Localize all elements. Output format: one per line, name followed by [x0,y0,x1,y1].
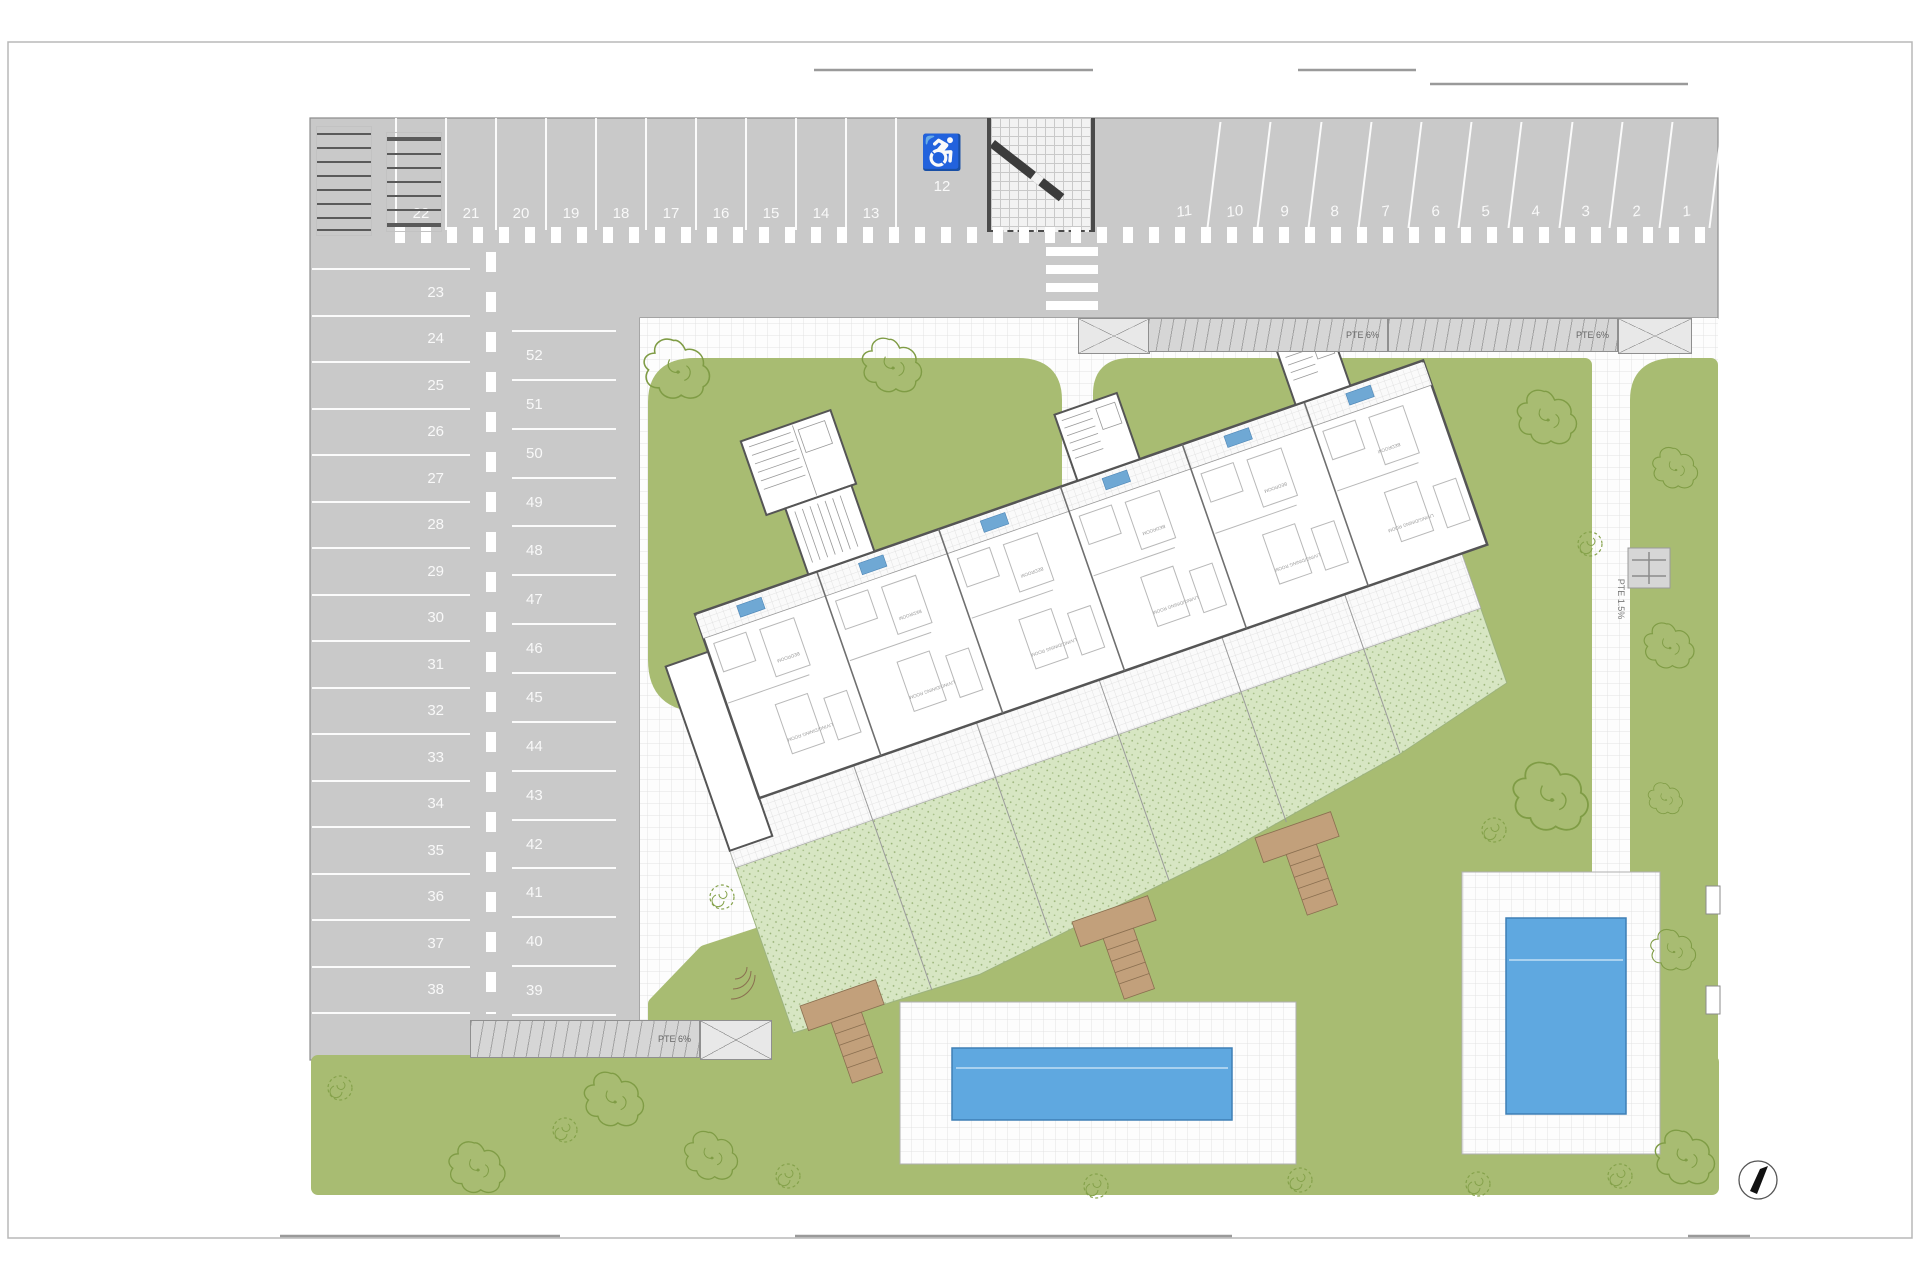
parking-space-number: 24 [427,330,444,347]
parking-space: 31 [312,642,470,689]
parking-space-number: 29 [427,563,444,580]
parking-space: 14 [797,118,847,230]
parking-space: 41 [512,869,616,918]
parking-space-number: 26 [427,423,444,440]
parking-space: 18 [597,118,647,230]
parking-space-number: 31 [427,656,444,673]
ramp-slope-label: PTE 6% [1346,330,1379,340]
parking-space: 40 [512,918,616,967]
parking-space-number: 13 [863,205,880,222]
parking-column-left: 23 24 25 26 27 28 29 30 31 32 33 34 35 3… [312,268,470,1014]
parking-space-number: 44 [526,738,543,755]
parking-space: 44 [512,723,616,772]
parking-space: 30 [312,596,470,643]
ramp-structure [1618,318,1692,354]
pool-right [1506,918,1626,1114]
lane-center-line [486,252,496,1014]
parking-space-number: 52 [526,347,543,364]
parking-space-number: 12 [934,178,951,195]
bicycle-rack [386,132,442,232]
parking-space-number: 38 [427,981,444,998]
parking-space-number: 10 [1226,202,1243,221]
parking-space: 17 [647,118,697,230]
parking-space-number: 25 [427,377,444,394]
parking-space-number: 34 [427,795,444,812]
parking-space: 27 [312,456,470,503]
parking-space-number: 11 [1176,202,1192,221]
parking-space: 45 [512,674,616,723]
parking-space: 26 [312,410,470,457]
parking-space: 25 [312,363,470,410]
parking-space-number: 45 [526,689,543,706]
parking-space-number: 21 [463,205,480,222]
parking-space: 19 [547,118,597,230]
parking-space: 35 [312,828,470,875]
parking-space-number: 50 [526,445,543,462]
parking-space: 36 [312,875,470,922]
parking-space-number: 32 [427,702,444,719]
parking-space: 23 [312,270,470,317]
parking-space: 51 [512,381,616,430]
parking-space: 24 [312,317,470,364]
parking-space-number: 5 [1481,202,1490,220]
ramp-structure [1078,318,1150,354]
entrance-gate [987,118,1095,232]
parking-row-top-left: 22 21 20 19 18 17 16 15 14 13 [395,118,897,230]
bicycle-rack [316,126,372,236]
parking-space: 13 [847,118,897,230]
parking-space: 38 [312,968,470,1015]
parking-space-number: 48 [526,542,543,559]
parking-space-number: 16 [713,205,730,222]
parking-space-number: 1 [1682,202,1691,220]
path-slope-label: PTE 1.5% [1612,564,1626,634]
parking-space-number: 36 [427,888,444,905]
parking-row-top-right: 11 10 9 8 7 6 5 4 3 2 1 [1158,122,1723,228]
handicap-parking-space: ♿ 12 [897,118,987,230]
parking-space: 39 [512,967,616,1016]
site-plan-page: BEDROOM LIVING/DINING ROOM BEDROOM LIVIN… [0,0,1920,1280]
parking-space-number: 17 [663,205,680,222]
parking-space: 28 [312,503,470,550]
parking-space: 29 [312,549,470,596]
parking-space-number: 15 [763,205,780,222]
parking-space-number: 28 [427,516,444,533]
parking-space: 48 [512,527,616,576]
ramp-slope-label: PTE 6% [1576,330,1609,340]
parking-space-number: 43 [526,787,543,804]
parking-space-number: 40 [526,933,543,950]
parking-space: 43 [512,772,616,821]
parking-space: 42 [512,821,616,870]
parking-space-number: 14 [813,205,830,222]
parking-space: 16 [697,118,747,230]
parking-space-number: 39 [526,982,543,999]
parking-space: 34 [312,782,470,829]
parking-space-number: 49 [526,494,543,511]
parking-space-number: 35 [427,842,444,859]
barrier-arm-icon [989,140,1064,201]
parking-space: 33 [312,735,470,782]
parking-space-number: 33 [427,749,444,766]
parking-space: 37 [312,921,470,968]
parking-edge-markings [395,227,1715,243]
pool-left [952,1048,1232,1120]
parking-space-number: 47 [526,591,543,608]
parking-space-number: 18 [613,205,630,222]
north-arrow [1739,1161,1777,1199]
vehicle-ramp: PTE 6% [470,1020,700,1058]
parking-space-number: 20 [513,205,530,222]
parking-space-number: 9 [1280,202,1289,220]
wheelchair-icon: ♿ [921,136,963,170]
picnic-table [1628,548,1670,588]
parking-space-number: 19 [563,205,580,222]
parking-space-number: 37 [427,935,444,952]
parking-space-number: 2 [1632,202,1641,220]
ramp-slope-label: PTE 6% [658,1034,691,1044]
pedestrian-crosswalk [1046,247,1098,317]
parking-space-number: 41 [526,884,543,901]
vehicle-ramp: PTE 6% [1388,318,1618,352]
vehicle-ramp: PTE 6% [1148,318,1388,352]
parking-space: 49 [512,479,616,528]
parking-space-number: 30 [427,609,444,626]
parking-space-number: 8 [1331,202,1340,220]
parking-space: 20 [497,118,547,230]
ramp-structure [700,1020,772,1060]
parking-space-number: 42 [526,836,543,853]
parking-space-number: 3 [1582,202,1591,220]
parking-space: 21 [447,118,497,230]
parking-space: 46 [512,625,616,674]
parking-space: 32 [312,689,470,736]
parking-space-number: 51 [526,396,543,413]
parking-space-number: 46 [526,640,543,657]
parking-space-number: 23 [427,284,444,301]
parking-column-middle: 52 51 50 49 48 47 46 45 44 43 42 41 40 3… [512,330,616,1016]
parking-space: 15 [747,118,797,230]
parking-space-number: 4 [1531,202,1540,220]
parking-space: 50 [512,430,616,479]
parking-space-number: 27 [427,470,444,487]
parking-space: 47 [512,576,616,625]
parking-space-number: 7 [1381,202,1390,220]
parking-space-number: 6 [1431,202,1440,220]
parking-space: 52 [512,332,616,381]
